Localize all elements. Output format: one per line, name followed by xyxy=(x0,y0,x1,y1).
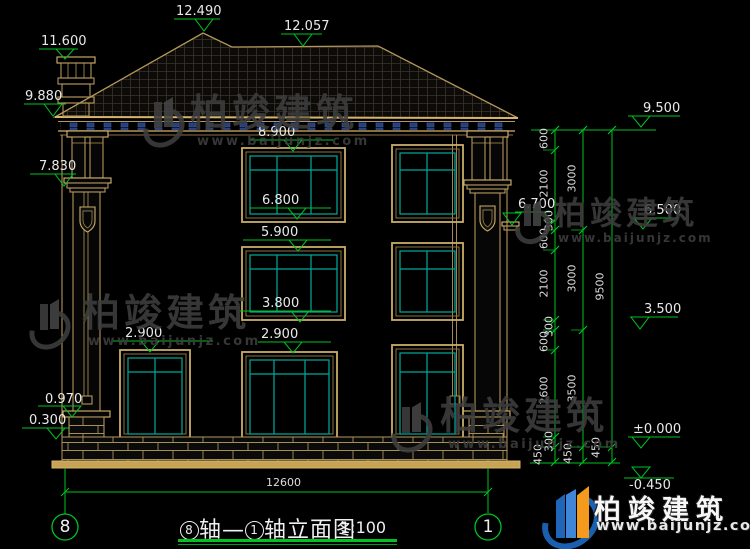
elevation-label-plinth: 0.300 xyxy=(29,414,66,427)
elevation-label-win3-sill: 6.800 xyxy=(262,194,299,207)
elevation-label-win2-head: 5.900 xyxy=(261,226,298,239)
caption-axis-start: 8 xyxy=(180,521,199,540)
elevation-label-floor2: 3.500 xyxy=(644,303,681,316)
door-1f-middle xyxy=(242,352,337,438)
watermark-2: 柏竣建筑 www.baijunjz.com xyxy=(26,294,261,348)
elevation-label-ridge-peak: 12.490 xyxy=(176,5,222,18)
brand-building-bar-icon xyxy=(556,494,565,538)
dim-chain1-600c: 600 xyxy=(539,320,550,364)
watermark-4: 柏竣建筑 www.baijunjz.com xyxy=(514,197,713,244)
caption-underline xyxy=(178,539,397,542)
watermark-3: 柏竣建筑 www.baijunjz.com xyxy=(388,397,621,451)
axis-bubble-8: 8 xyxy=(52,514,78,540)
dim-chain2-3000b: 3000 xyxy=(567,257,578,301)
elevation-label-capital: 7.830 xyxy=(39,160,76,173)
elevation-label-win2-sill: 3.800 xyxy=(262,297,299,310)
elevation-label-ground: ±0.000 xyxy=(633,423,681,436)
caption-axis-end: 1 xyxy=(245,521,264,540)
dim-chain1-600a: 600 xyxy=(539,117,550,161)
elevation-label-chimney: 11.600 xyxy=(41,35,87,48)
caption-scale: 1:100 xyxy=(340,518,386,537)
dim-chain1-2100b: 2100 xyxy=(539,262,550,306)
elevation-drawing-canvas: 12.490 12.057 11.600 9.880 7.830 8.900 6… xyxy=(0,0,750,549)
brand-url: www.baijunjz.com xyxy=(596,518,750,534)
window-3f-left xyxy=(242,148,345,222)
door-1f-left xyxy=(120,350,190,438)
wall-outline xyxy=(62,135,519,437)
caption-underline-2 xyxy=(178,544,397,546)
elevation-label-pedestal: 0.970 xyxy=(45,393,82,406)
dim-total-width: 12600 xyxy=(266,477,301,488)
elevation-label-eave-left: 9.880 xyxy=(25,90,62,103)
axis-bubble-1: 1 xyxy=(475,514,501,540)
dim-chain3-9500: 9500 xyxy=(595,265,606,309)
watermark-1: 柏竣建筑 www.baijunjz.com xyxy=(140,94,370,148)
brand-building-bar-icon xyxy=(566,489,576,538)
cad-linework xyxy=(0,0,750,549)
elevation-label-ridge-main: 12.057 xyxy=(284,20,330,33)
elevation-label-door-mid: 2.900 xyxy=(261,328,298,341)
elevation-label-eave-right: 9.500 xyxy=(643,102,680,115)
